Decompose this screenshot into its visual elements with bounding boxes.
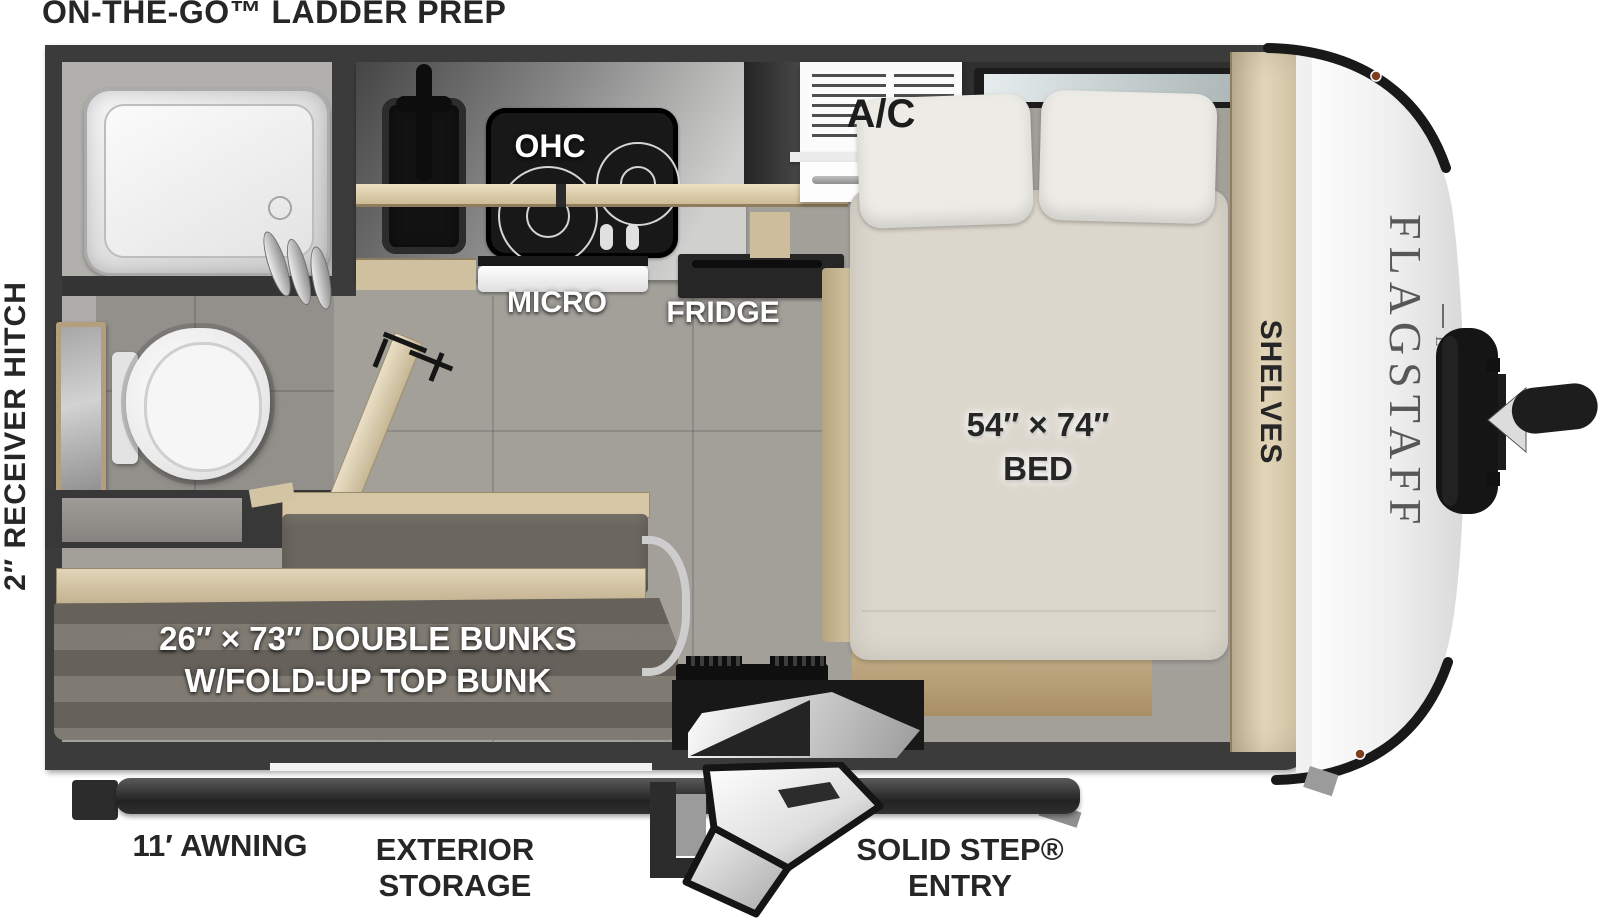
hitch-pin <box>1486 472 1500 486</box>
cap-rivet <box>1371 71 1381 81</box>
toilet-seat <box>144 342 262 472</box>
cap-rivet <box>1355 749 1365 759</box>
bed-size-label: 54″ × 74″ <box>920 406 1156 444</box>
floor-grout-line <box>356 430 852 432</box>
microwave-trim <box>478 256 648 266</box>
solid-step-label-line2: ENTRY <box>840 868 1080 904</box>
bathroom-mirror <box>56 322 106 502</box>
shower-tub-inner <box>104 104 314 258</box>
pillow <box>1038 90 1217 225</box>
awning-tube <box>116 778 1080 814</box>
bunks-label-line1: 26″ × 73″ DOUBLE BUNKS <box>95 620 641 658</box>
under-counter-wood <box>356 258 476 290</box>
bathroom-cabinet-face <box>62 498 242 542</box>
furnace-vent <box>686 656 742 666</box>
tongue-jack-handle <box>1510 381 1600 436</box>
fridge-handle <box>692 260 822 268</box>
hitch-pin <box>1486 358 1500 372</box>
wall-trim-strip <box>270 763 652 771</box>
front-cap: FLAGSTAFF E-PRO <box>1240 28 1600 800</box>
bunk-front-rail <box>56 568 646 604</box>
sink-faucet <box>416 64 432 182</box>
furnace-vent <box>770 656 826 666</box>
fridge-label: FRIDGE <box>648 296 798 330</box>
micro-label: MICRO <box>492 286 622 320</box>
cooktop-knob <box>626 224 639 250</box>
floorplan-canvas: ON-THE-GO™ LADDER PREP 2″ RECEIVER HITCH <box>0 0 1600 921</box>
bath-kitchen-divider-wall <box>332 45 356 296</box>
exterior-storage-label-line1: EXTERIOR <box>360 832 550 868</box>
receiver-hitch-label: 2″ RECEIVER HITCH <box>0 226 33 646</box>
overhead-cabinet-dark <box>744 62 804 204</box>
awning-bracket <box>72 780 118 820</box>
mattress-fold-line <box>862 610 1216 612</box>
solid-step-label-line1: SOLID STEP® <box>840 832 1080 868</box>
shelf-bracket <box>556 184 566 207</box>
awning-label: 11′ AWNING <box>110 828 330 864</box>
shower-drain <box>268 196 292 220</box>
bed-label: BED <box>920 450 1156 488</box>
exterior-storage-label-line2: STORAGE <box>360 868 550 904</box>
overhead-cabinet-shelf <box>356 184 848 207</box>
cooktop-knob <box>600 224 613 250</box>
ladder-prep-label: ON-THE-GO™ LADDER PREP <box>42 0 662 31</box>
ohc-label: OHC <box>500 128 600 165</box>
bunks-label-line2: W/FOLD-UP TOP BUNK <box>95 662 641 700</box>
cap-edge-shade <box>1296 52 1312 776</box>
sink-faucet <box>396 96 452 112</box>
flagstaff-logo: FLAGSTAFF <box>1380 214 1431 532</box>
propane-cover-highlight <box>1442 336 1458 506</box>
wood-trim <box>750 212 790 258</box>
ac-label: A/C <box>800 92 962 137</box>
